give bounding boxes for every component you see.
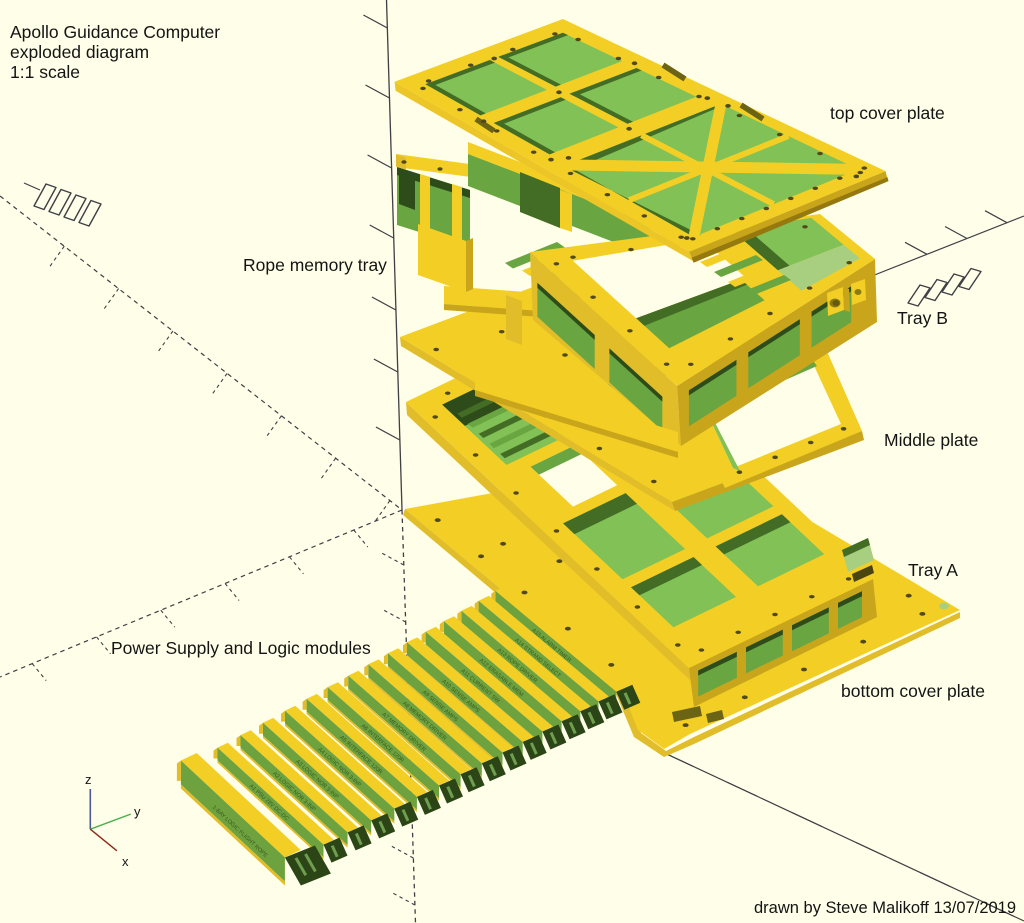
svg-text:Apollo Guidance Computer: Apollo Guidance Computer (10, 22, 220, 42)
svg-text:Middle plate: Middle plate (884, 430, 978, 450)
svg-text:Tray B: Tray B (897, 308, 948, 328)
svg-text:1:1 scale: 1:1 scale (10, 62, 80, 82)
svg-text:x: x (122, 854, 129, 869)
svg-text:Rope memory tray: Rope memory tray (243, 255, 387, 275)
svg-text:bottom cover plate: bottom cover plate (841, 681, 985, 701)
svg-text:y: y (134, 804, 141, 819)
svg-text:top cover plate: top cover plate (830, 103, 945, 123)
svg-text:Tray A: Tray A (908, 560, 958, 580)
svg-text:exploded diagram: exploded diagram (10, 42, 149, 62)
svg-text:Power Supply and Logic modules: Power Supply and Logic modules (111, 638, 371, 658)
svg-text:z: z (85, 772, 92, 787)
svg-text:drawn by Steve Malikoff 13/07: drawn by Steve Malikoff 13/07/2019 (754, 899, 1016, 917)
